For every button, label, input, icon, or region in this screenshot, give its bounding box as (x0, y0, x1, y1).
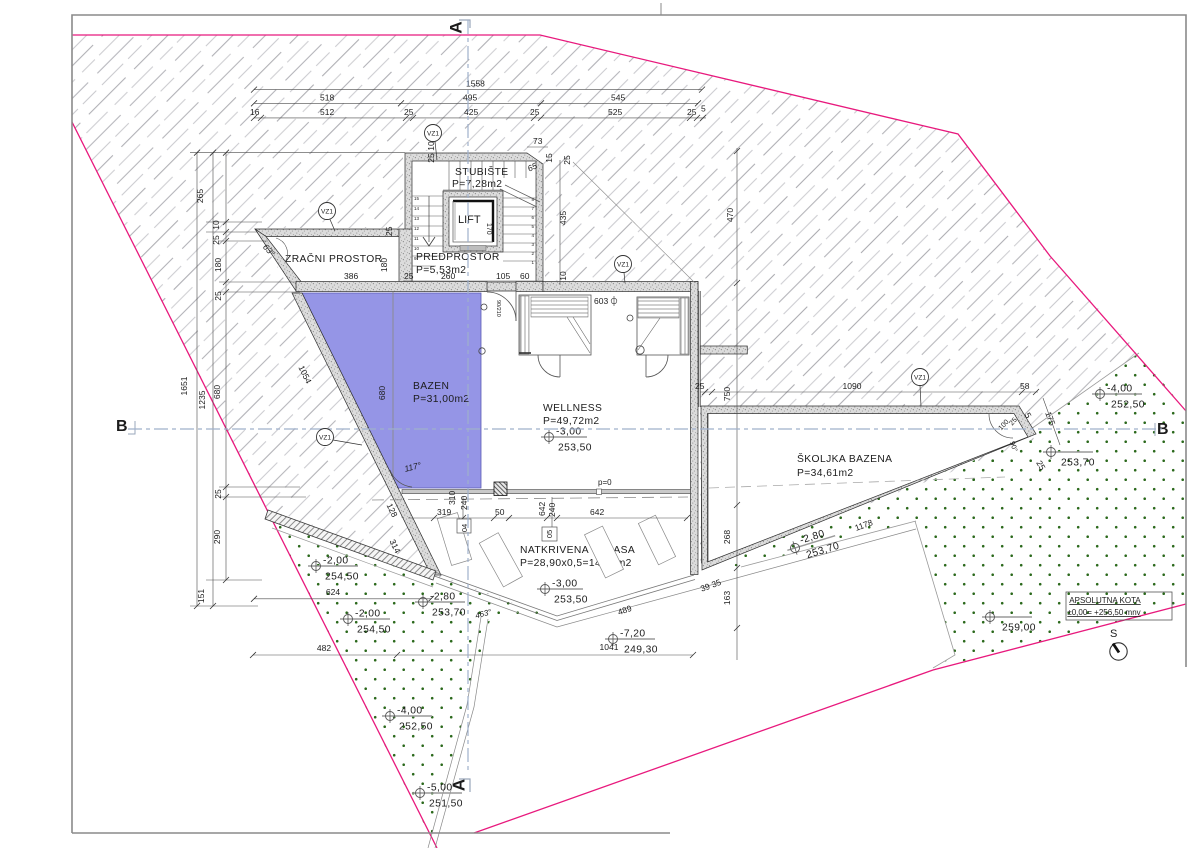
svg-text:25: 25 (404, 271, 414, 281)
svg-text:P=31,00m2: P=31,00m2 (413, 394, 470, 405)
svg-text:S: S (1110, 628, 1117, 640)
svg-text:-3,00: -3,00 (556, 427, 581, 438)
svg-text:10: 10 (558, 271, 568, 281)
svg-text:11: 11 (414, 236, 419, 241)
svg-text:58: 58 (1020, 381, 1030, 391)
svg-text:15: 15 (544, 153, 554, 163)
svg-text:73: 73 (533, 136, 543, 146)
svg-text:±0,00= +256,50 mnv: ±0,00= +256,50 mnv (1067, 608, 1140, 617)
svg-text:290: 290 (212, 530, 222, 544)
svg-text:1651: 1651 (179, 376, 189, 395)
svg-text:VZ1: VZ1 (914, 375, 926, 382)
svg-text:50: 50 (495, 507, 505, 517)
svg-text:163: 163 (722, 591, 732, 605)
svg-text:1558: 1558 (466, 79, 485, 89)
svg-text:-2,00: -2,00 (355, 609, 380, 620)
svg-text:435: 435 (558, 211, 568, 225)
svg-text:310: 310 (447, 491, 457, 505)
svg-text:25: 25 (404, 107, 414, 117)
svg-text:249,30: 249,30 (624, 645, 658, 656)
svg-text:5: 5 (701, 104, 706, 114)
svg-text:25: 25 (213, 489, 223, 499)
svg-text:151: 151 (196, 589, 206, 603)
svg-text:16: 16 (250, 107, 260, 117)
svg-text:ZRAČNI PROSTOR: ZRAČNI PROSTOR (285, 252, 383, 265)
svg-text:-3,00: -3,00 (552, 579, 577, 590)
svg-text:25: 25 (213, 291, 223, 301)
svg-text:APSOLUTNA KOTA: APSOLUTNA KOTA (1069, 596, 1141, 605)
svg-text:VZ1: VZ1 (319, 435, 331, 442)
svg-text:10: 10 (426, 141, 436, 151)
svg-text:B: B (116, 418, 128, 435)
svg-text:603: 603 (594, 296, 608, 306)
svg-text:-2,80: -2,80 (430, 592, 455, 603)
svg-text:252,50: 252,50 (399, 722, 433, 733)
svg-text:VZ1: VZ1 (427, 131, 439, 138)
svg-text:15: 15 (414, 196, 420, 201)
svg-text:386: 386 (344, 271, 358, 281)
svg-text:25: 25 (384, 226, 394, 236)
svg-text:253,70: 253,70 (1061, 458, 1095, 469)
svg-text:642: 642 (590, 507, 604, 517)
svg-text:253,50: 253,50 (558, 443, 592, 454)
svg-text:253,70: 253,70 (432, 608, 466, 619)
svg-text:13: 13 (414, 216, 420, 221)
svg-text:12: 12 (414, 226, 420, 231)
svg-text:624: 624 (326, 587, 340, 597)
svg-text:25: 25 (426, 153, 436, 163)
svg-text:10: 10 (414, 246, 420, 251)
svg-text:P=34,61m2: P=34,61m2 (797, 468, 854, 479)
svg-text:NATKRIVENA TERASA: NATKRIVENA TERASA (520, 545, 635, 556)
svg-text:170: 170 (485, 223, 492, 235)
svg-text:-4,00: -4,00 (397, 706, 422, 717)
svg-text:260: 260 (441, 271, 455, 281)
svg-text:ŠKOLJKA BAZENA: ŠKOLJKA BAZENA (797, 452, 892, 465)
svg-text:180: 180 (379, 258, 389, 272)
svg-text:1041: 1041 (600, 642, 619, 652)
svg-text:525: 525 (608, 107, 622, 117)
svg-text:90/210: 90/210 (495, 300, 501, 317)
svg-text:25: 25 (695, 381, 705, 391)
svg-text:10: 10 (211, 220, 221, 230)
svg-text:680: 680 (377, 386, 387, 400)
svg-text:1235: 1235 (197, 390, 207, 409)
svg-text:251,50: 251,50 (429, 799, 463, 810)
svg-text:512: 512 (320, 107, 334, 117)
svg-text:-7,20: -7,20 (620, 629, 645, 640)
svg-text:253,50: 253,50 (554, 595, 588, 606)
svg-text:495: 495 (463, 92, 477, 102)
svg-text:105: 105 (496, 271, 510, 281)
svg-text:14: 14 (414, 206, 420, 211)
svg-text:1090: 1090 (843, 381, 862, 391)
svg-text:470: 470 (725, 208, 735, 222)
svg-text:268: 268 (722, 530, 732, 544)
svg-text:25: 25 (687, 107, 697, 117)
svg-text:BAZEN: BAZEN (413, 381, 449, 392)
svg-text:B: B (1157, 421, 1169, 438)
svg-text:265: 265 (195, 189, 205, 203)
svg-text:680: 680 (212, 385, 222, 399)
svg-text:259,00: 259,00 (1002, 623, 1036, 634)
svg-text:254,50: 254,50 (357, 625, 391, 636)
svg-text:518: 518 (320, 92, 334, 102)
svg-text:750: 750 (722, 387, 732, 401)
svg-text:25: 25 (530, 107, 540, 117)
svg-text:642: 642 (537, 502, 547, 516)
svg-text:545: 545 (611, 92, 625, 102)
svg-text:-2,00: -2,00 (323, 556, 348, 567)
svg-text:WELLNESS: WELLNESS (543, 403, 602, 414)
svg-text:P=49,72m2: P=49,72m2 (543, 416, 600, 427)
svg-text:LIFT: LIFT (458, 214, 481, 226)
svg-text:A: A (446, 21, 465, 33)
svg-text:p=0: p=0 (598, 478, 612, 487)
svg-text:252,50: 252,50 (1111, 400, 1145, 411)
svg-text:240: 240 (547, 503, 557, 517)
svg-text:25: 25 (562, 155, 572, 165)
svg-text:-5,00: -5,00 (427, 783, 452, 794)
svg-text:254,50: 254,50 (325, 572, 359, 583)
svg-text:VZ1: VZ1 (617, 262, 629, 269)
svg-text:319: 319 (437, 507, 451, 517)
svg-text:425: 425 (464, 107, 478, 117)
svg-text:P=7,28m2: P=7,28m2 (452, 179, 502, 190)
svg-text:482: 482 (317, 643, 331, 653)
svg-text:PREDPROSTOR: PREDPROSTOR (416, 252, 500, 263)
svg-text:05: 05 (545, 530, 554, 538)
svg-text:25: 25 (211, 235, 221, 245)
svg-text:-4,00: -4,00 (1107, 384, 1132, 395)
svg-text:STUBIŠTE: STUBIŠTE (455, 165, 509, 178)
svg-text:60: 60 (520, 271, 530, 281)
svg-text:VZ1: VZ1 (321, 209, 333, 216)
svg-text:180: 180 (213, 258, 223, 272)
